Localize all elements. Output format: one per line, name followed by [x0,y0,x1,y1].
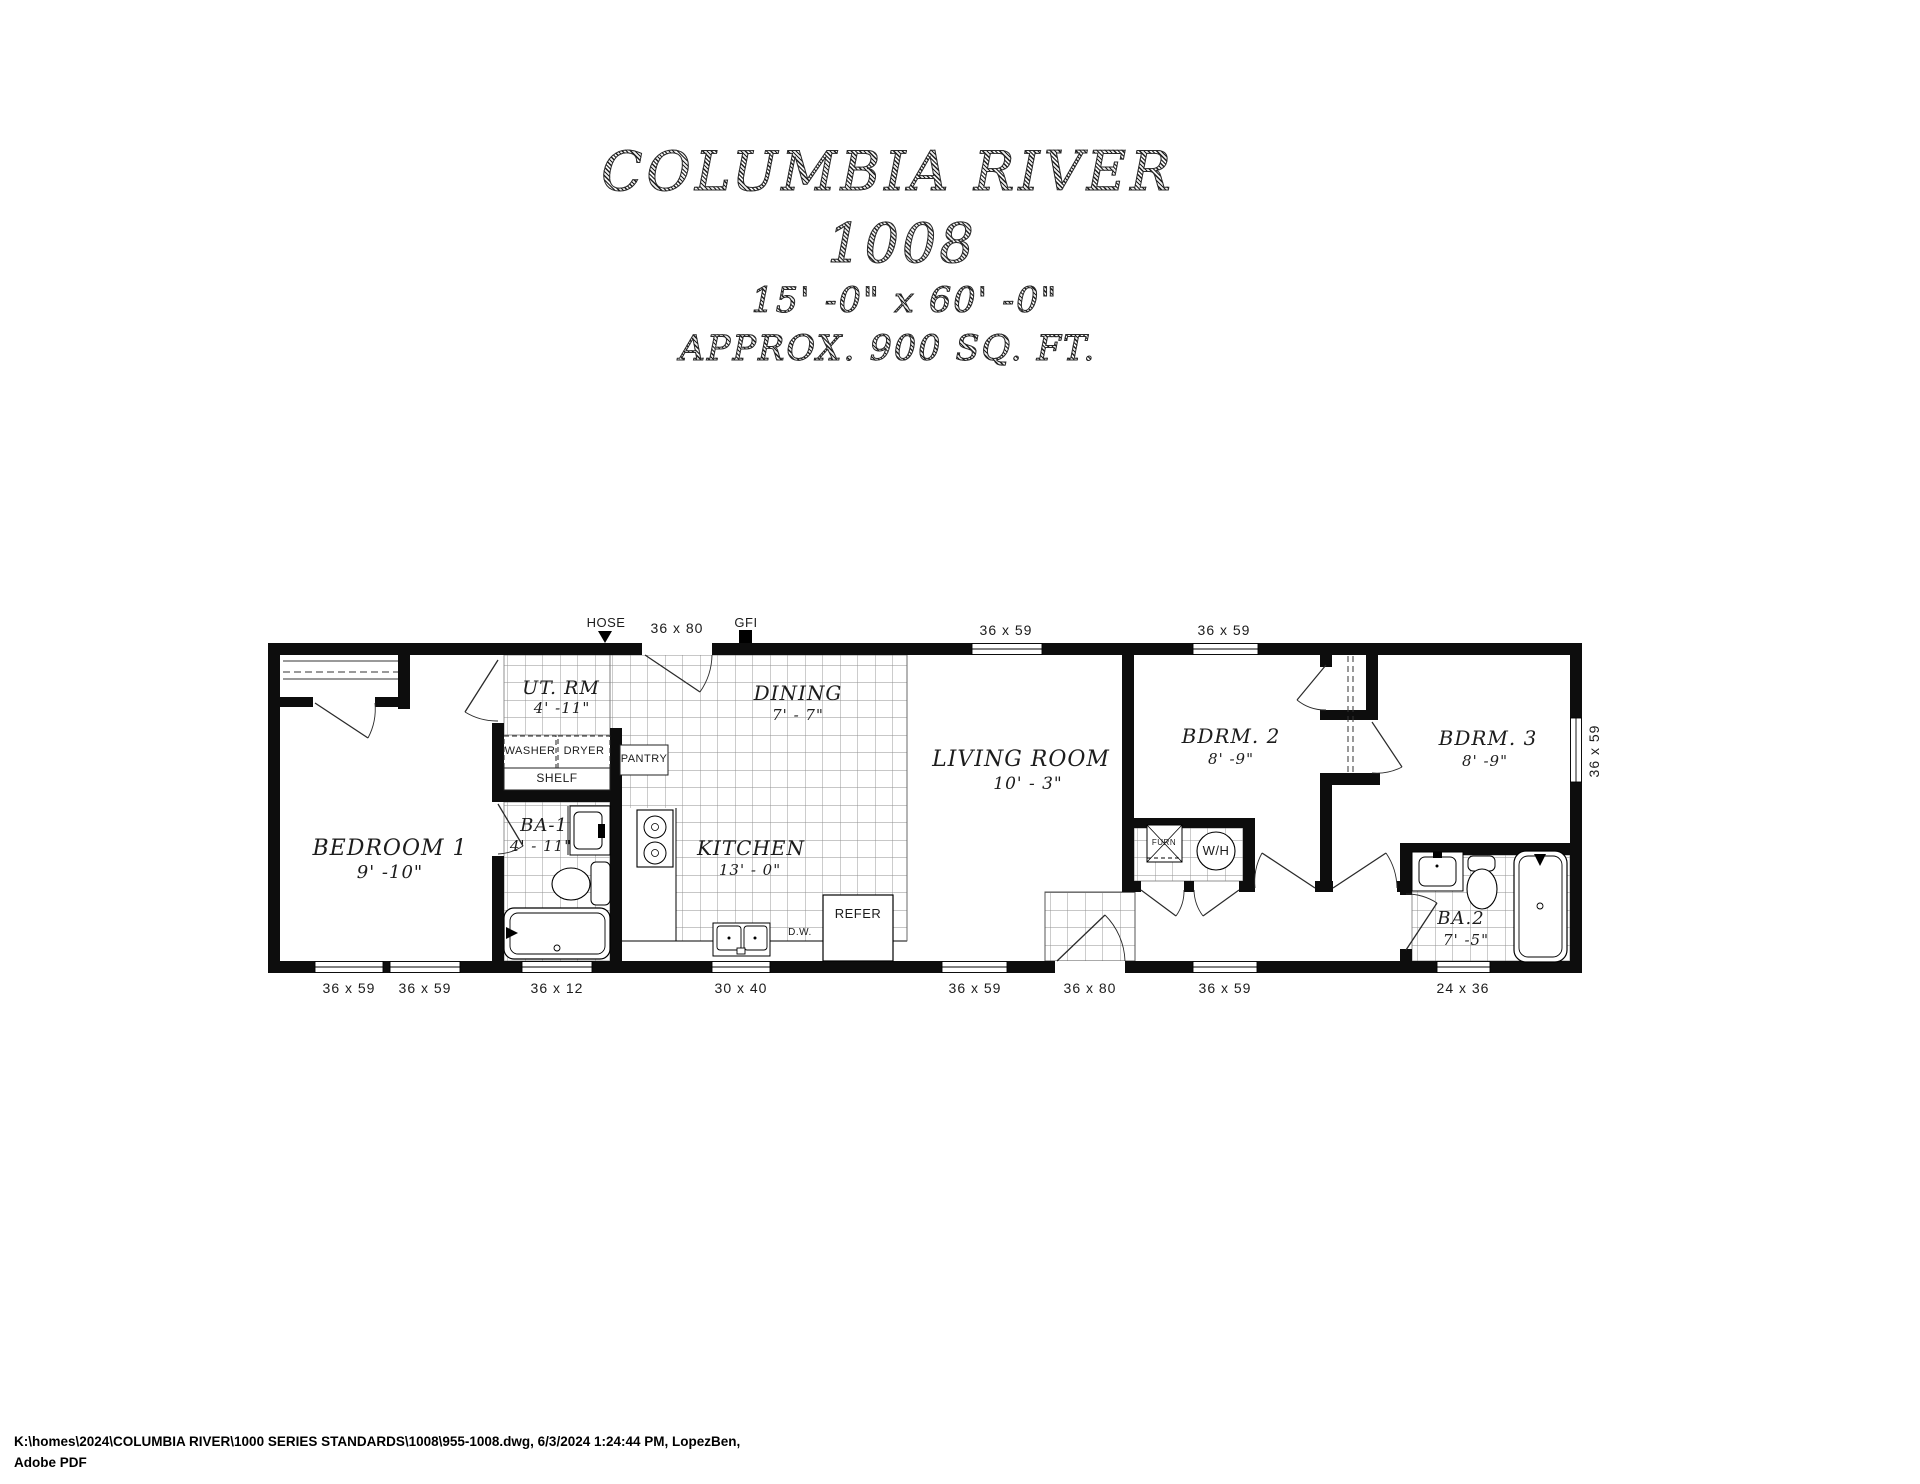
bdrm2-door-swing [1255,853,1315,888]
ba2-toilet [1467,856,1497,909]
room-label-living: LIVING ROOM [932,747,1110,772]
gfi-outlet-label: GFI [734,615,757,630]
window-size-label-ba2: 24 x 36 [1437,980,1490,996]
window-right-bdrm3 [1571,718,1582,782]
bedroom1-door-swing [465,660,498,721]
water-heater-label: W/H [1203,843,1230,858]
window-size-label-living: 36 x 59 [949,980,1002,996]
window-size-label-bedroom1-b: 36 x 59 [399,980,452,996]
window-top-living [972,644,1042,655]
window-size-label-top-bdrm2: 36 x 59 [1198,622,1251,638]
window-size-label-kitchen: 30 x 40 [715,980,768,996]
ba1-bathtub [504,908,610,959]
window-size-label-hall: 36 x 59 [1199,980,1252,996]
bedroom1-closet-door-swing [315,703,375,738]
floorplan-page: COLUMBIA RIVER 1008 15' -0" x 60' -0" AP… [0,0,1920,1484]
window-bottom-hall [1193,962,1257,973]
footer-printer: Adobe PDF [14,1455,87,1470]
ba2-sink [1412,852,1463,891]
kitchen-sink [713,923,770,956]
stove [637,810,673,867]
closet-door-left-swing [1141,890,1184,916]
room-label-utility: UT. RM [522,677,600,699]
window-size-label-ba1: 36 x 12 [531,980,584,996]
room-label-ba1: BA-1 [520,815,568,836]
closet-door-right-swing [1194,890,1239,916]
hose-bib-label: HOSE [587,615,626,630]
window-bottom-ba1 [522,962,592,973]
room-dim-ba2: 7' -5" [1443,931,1489,949]
plan-model-number: 1008 [827,212,976,275]
room-dim-bdrm3: 8' -9" [1462,752,1508,770]
footer-file-path: K:\homes\2024\COLUMBIA RIVER\1000 SERIES… [14,1434,740,1449]
room-label-ba2: BA.2 [1437,908,1484,929]
window-bottom-kitchen [712,962,770,973]
window-bottom-bedroom1-b [390,962,460,973]
room-dim-utility: 4' -11" [534,699,591,717]
furnace-label: FURN [1152,838,1176,847]
room-dim-dining: 7' - 7" [772,706,824,724]
bdrm3-closet-door-swing [1372,722,1402,773]
window-size-label-top-living: 36 x 59 [980,622,1033,638]
room-label-kitchen: KITCHEN [697,836,805,860]
room-label-bedroom1: BEDROOM 1 [312,836,467,861]
room-dim-living: 10' - 3" [993,774,1063,794]
plan-dimensions: 15' -0" x 60' -0" [752,281,1059,321]
window-size-label-bdrm3: 36 x 59 [1586,725,1602,778]
room-dim-kitchen: 13' - 0" [719,861,781,879]
gfi-outlet-icon [739,630,752,643]
room-dim-bedroom1: 9' -10" [357,862,423,883]
window-bottom-living [942,962,1007,973]
window-bottom-bedroom1-a [315,962,383,973]
dishwasher-label: D.W. [788,927,812,938]
pantry-label: PANTRY [621,753,668,765]
bdrm2-closet-door-swing [1297,665,1326,710]
ba2-bathtub [1514,851,1567,962]
window-top-bdrm2 [1193,644,1258,655]
room-dim-bdrm2: 8' -9" [1208,750,1254,768]
room-dim-ba1: 4' - 11" [510,837,572,855]
door-size-label-back: 36 x 80 [1064,980,1117,996]
washer-label: WASHER [505,745,556,757]
room-label-bdrm2: BDRM. 2 [1182,724,1281,748]
shelf-label: SHELF [536,771,577,785]
refrigerator-label: REFER [835,906,882,921]
window-bottom-ba2 [1437,962,1490,973]
dryer-label: DRYER [564,745,605,757]
bdrm3-door-swing [1333,853,1397,888]
hose-bib-icon [598,631,612,643]
ba1-sink [570,806,610,855]
plan-area: APPROX. 900 SQ. FT. [680,329,1097,369]
door-size-label-front: 36 x 80 [651,620,704,636]
refrigerator-box [823,895,893,961]
room-label-bdrm3: BDRM. 3 [1439,726,1538,750]
plan-title: COLUMBIA RIVER [601,140,1175,203]
walls [268,643,1582,973]
room-label-dining: DINING [754,681,843,705]
window-size-label-bedroom1-a: 36 x 59 [323,980,376,996]
